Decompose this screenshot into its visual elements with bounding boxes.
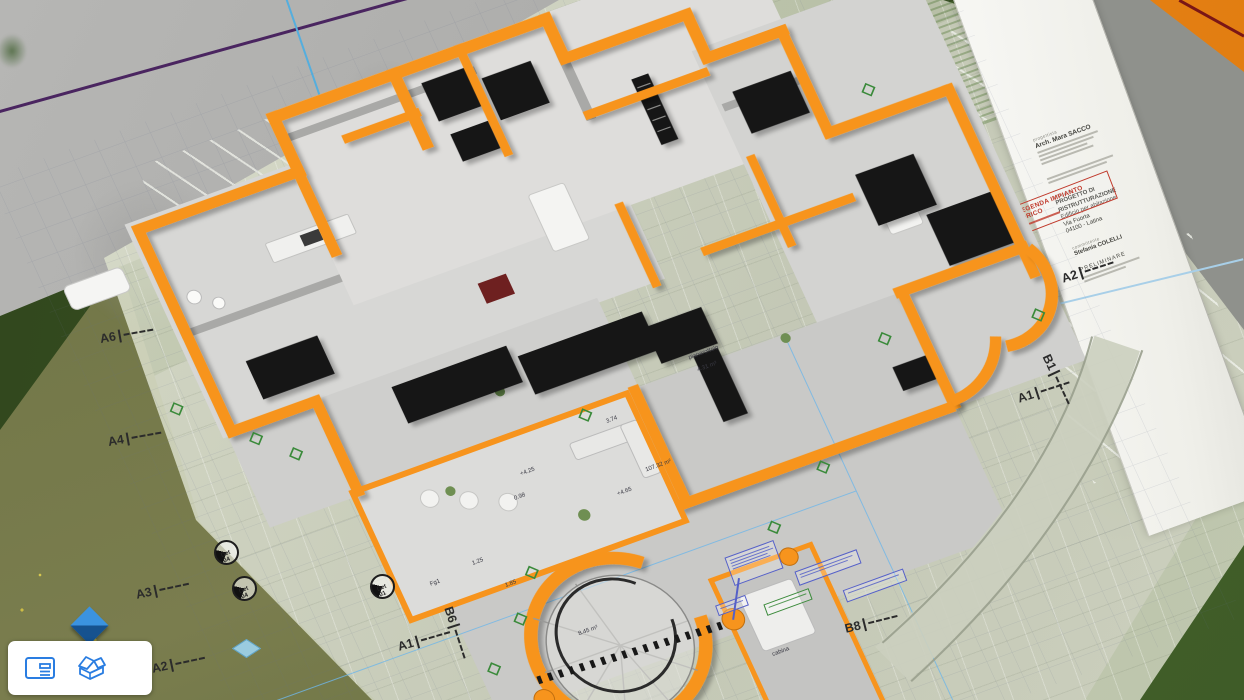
viewer-toolbar: [8, 641, 152, 695]
detail-marker: Det 04: [232, 576, 257, 601]
detail-marker: Det 01: [370, 574, 395, 599]
layout-sheet-icon[interactable]: [22, 652, 58, 684]
section-marker-label: A4: [107, 432, 125, 449]
3d-model-icon[interactable]: [72, 652, 108, 684]
bim-3d-viewport[interactable]: progettista Arch. Mara SACCO progetto PR…: [0, 0, 1244, 700]
3d-model-icon-glyph: [72, 652, 108, 684]
section-marker-label: A6: [99, 329, 117, 346]
layout-sheet-icon-glyph: [23, 653, 57, 683]
detail-marker: Det 04: [214, 540, 239, 565]
